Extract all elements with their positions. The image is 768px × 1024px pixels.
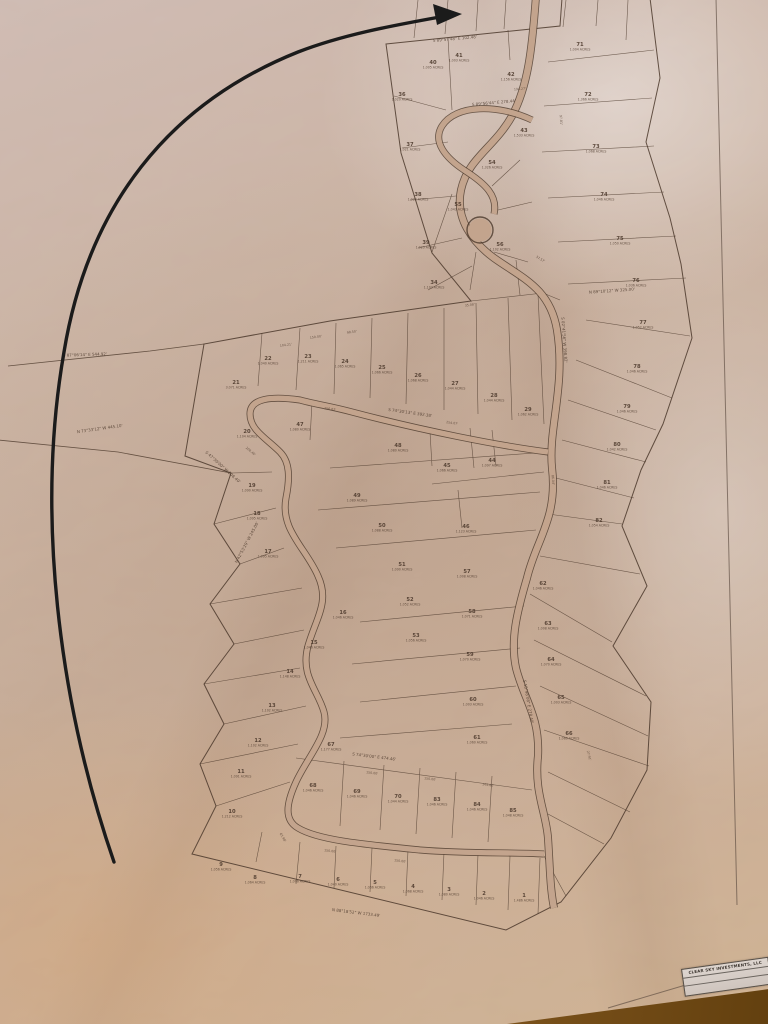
- svg-text:1.070 ACRES: 1.070 ACRES: [541, 663, 562, 667]
- svg-text:1.326 ACRES: 1.326 ACRES: [482, 166, 503, 170]
- svg-text:1.008 ACRES: 1.008 ACRES: [457, 575, 478, 579]
- svg-text:1.071 ACRES: 1.071 ACRES: [462, 615, 483, 619]
- photo-of-plat-map: 401.005 ACRES411.003 ACRES421.156 ACRES4…: [0, 0, 768, 1024]
- svg-text:1.148 ACRES: 1.148 ACRES: [280, 675, 301, 679]
- svg-text:1.046 ACRES: 1.046 ACRES: [474, 897, 495, 901]
- svg-text:1.097 ACRES: 1.097 ACRES: [482, 464, 503, 468]
- svg-text:1.066 ACRES: 1.066 ACRES: [437, 469, 458, 473]
- svg-text:1.095 ACRES: 1.095 ACRES: [258, 555, 279, 559]
- svg-text:1.088 ACRES: 1.088 ACRES: [372, 529, 393, 533]
- svg-text:1.533 ACRES: 1.533 ACRES: [514, 134, 535, 138]
- svg-text:1.066 ACRES: 1.066 ACRES: [365, 886, 386, 890]
- svg-text:1.050 ACRES: 1.050 ACRES: [610, 242, 631, 246]
- svg-text:1.091 ACRES: 1.091 ACRES: [231, 775, 252, 779]
- svg-text:1.003 ACRES: 1.003 ACRES: [551, 701, 572, 705]
- svg-text:1.046 ACRES: 1.046 ACRES: [427, 803, 448, 807]
- svg-text:1.177 ACRES: 1.177 ACRES: [321, 748, 342, 752]
- svg-text:1.060 ACRES: 1.060 ACRES: [559, 737, 580, 741]
- svg-text:1.046 ACRES: 1.046 ACRES: [617, 410, 638, 414]
- svg-text:1.052 ACRES: 1.052 ACRES: [400, 603, 421, 607]
- svg-text:1.046 ACRES: 1.046 ACRES: [304, 646, 325, 650]
- svg-text:1.060 ACRES: 1.060 ACRES: [467, 741, 488, 745]
- svg-text:1.008 ACRES: 1.008 ACRES: [538, 627, 559, 631]
- svg-text:1.040 ACRES: 1.040 ACRES: [328, 883, 349, 887]
- svg-text:1.123 ACRES: 1.123 ACRES: [456, 530, 477, 534]
- svg-text:1.095 ACRES: 1.095 ACRES: [247, 517, 268, 521]
- svg-text:1.044 ACRES: 1.044 ACRES: [388, 800, 409, 804]
- svg-text:1.005 ACRES: 1.005 ACRES: [423, 66, 444, 70]
- svg-text:1.062 ACRES: 1.062 ACRES: [518, 413, 539, 417]
- svg-text:1.046 ACRES: 1.046 ACRES: [303, 789, 324, 793]
- svg-text:1.211 ACRES: 1.211 ACRES: [298, 360, 319, 364]
- svg-text:1.022 ACRES: 1.022 ACRES: [408, 198, 429, 202]
- svg-text:1.044 ACRES: 1.044 ACRES: [445, 387, 466, 391]
- svg-text:1.046 ACRES: 1.046 ACRES: [333, 616, 354, 620]
- svg-text:1.054 ACRES: 1.054 ACRES: [589, 524, 610, 528]
- svg-text:1.046 ACRES: 1.046 ACRES: [467, 808, 488, 812]
- svg-text:1.056 ACRES: 1.056 ACRES: [406, 639, 427, 643]
- svg-text:1.004 ACRES: 1.004 ACRES: [570, 48, 591, 52]
- svg-text:1.021 ACRES: 1.021 ACRES: [400, 148, 421, 152]
- paper-wrinkle-texture: [0, 0, 768, 1024]
- svg-text:1.064 ACRES: 1.064 ACRES: [245, 881, 266, 885]
- svg-text:1.046 ACRES: 1.046 ACRES: [627, 370, 648, 374]
- svg-text:1.048 ACRES: 1.048 ACRES: [503, 814, 524, 818]
- svg-text:1.102 ACRES: 1.102 ACRES: [490, 248, 511, 252]
- svg-text:1.023 ACRES: 1.023 ACRES: [416, 246, 437, 250]
- svg-text:1.003 ACRES: 1.003 ACRES: [463, 703, 484, 707]
- svg-text:1.020 ACRES: 1.020 ACRES: [392, 98, 413, 102]
- svg-text:1.156 ACRES: 1.156 ACRES: [501, 78, 522, 82]
- svg-text:1.089 ACRES: 1.089 ACRES: [347, 499, 368, 503]
- svg-text:1.068 ACRES: 1.068 ACRES: [403, 890, 424, 894]
- svg-text:1.102 ACRES: 1.102 ACRES: [262, 709, 283, 713]
- svg-text:1.103 ACRES: 1.103 ACRES: [424, 286, 445, 290]
- svg-text:1.003 ACRES: 1.003 ACRES: [449, 59, 470, 63]
- svg-text:1.052 ACRES: 1.052 ACRES: [633, 326, 654, 330]
- svg-text:1.080 ACRES: 1.080 ACRES: [388, 449, 409, 453]
- svg-text:1.102 ACRES: 1.102 ACRES: [248, 744, 269, 748]
- svg-text:1.046 ACRES: 1.046 ACRES: [533, 587, 554, 591]
- svg-text:1.080 ACRES: 1.080 ACRES: [290, 428, 311, 432]
- svg-text:1.080 ACRES: 1.080 ACRES: [439, 893, 460, 897]
- svg-text:3.071 ACRES: 3.071 ACRES: [226, 386, 247, 390]
- svg-text:1.068 ACRES: 1.068 ACRES: [408, 379, 429, 383]
- svg-text:1.043 ACRES: 1.043 ACRES: [448, 208, 469, 212]
- svg-text:1.042 ACRES: 1.042 ACRES: [607, 448, 628, 452]
- svg-text:1.486 ACRES: 1.486 ACRES: [514, 899, 535, 903]
- svg-text:1.046 ACRES: 1.046 ACRES: [347, 795, 368, 799]
- svg-text:1.044 ACRES: 1.044 ACRES: [484, 399, 505, 403]
- svg-text:1.068 ACRES: 1.068 ACRES: [586, 150, 607, 154]
- svg-text:1.366 ACRES: 1.366 ACRES: [578, 98, 599, 102]
- svg-text:1.040 ACRES: 1.040 ACRES: [258, 362, 279, 366]
- svg-text:1.046 ACRES: 1.046 ACRES: [594, 198, 615, 202]
- svg-text:1.056 ACRES: 1.056 ACRES: [211, 868, 232, 872]
- svg-text:1.046 ACRES: 1.046 ACRES: [597, 486, 618, 490]
- plat-drawing: 401.005 ACRES411.003 ACRES421.156 ACRES4…: [0, 0, 768, 1024]
- svg-text:1.212 ACRES: 1.212 ACRES: [222, 815, 243, 819]
- svg-text:1.104 ACRES: 1.104 ACRES: [237, 435, 258, 439]
- svg-text:1.090 ACRES: 1.090 ACRES: [392, 568, 413, 572]
- svg-text:1.090 ACRES: 1.090 ACRES: [242, 489, 263, 493]
- svg-text:1.066 ACRES: 1.066 ACRES: [372, 371, 393, 375]
- svg-text:1.066 ACRES: 1.066 ACRES: [290, 880, 311, 884]
- svg-text:1.065 ACRES: 1.065 ACRES: [335, 365, 356, 369]
- svg-text:194.27': 194.27': [514, 87, 526, 92]
- svg-text:1.070 ACRES: 1.070 ACRES: [460, 658, 481, 662]
